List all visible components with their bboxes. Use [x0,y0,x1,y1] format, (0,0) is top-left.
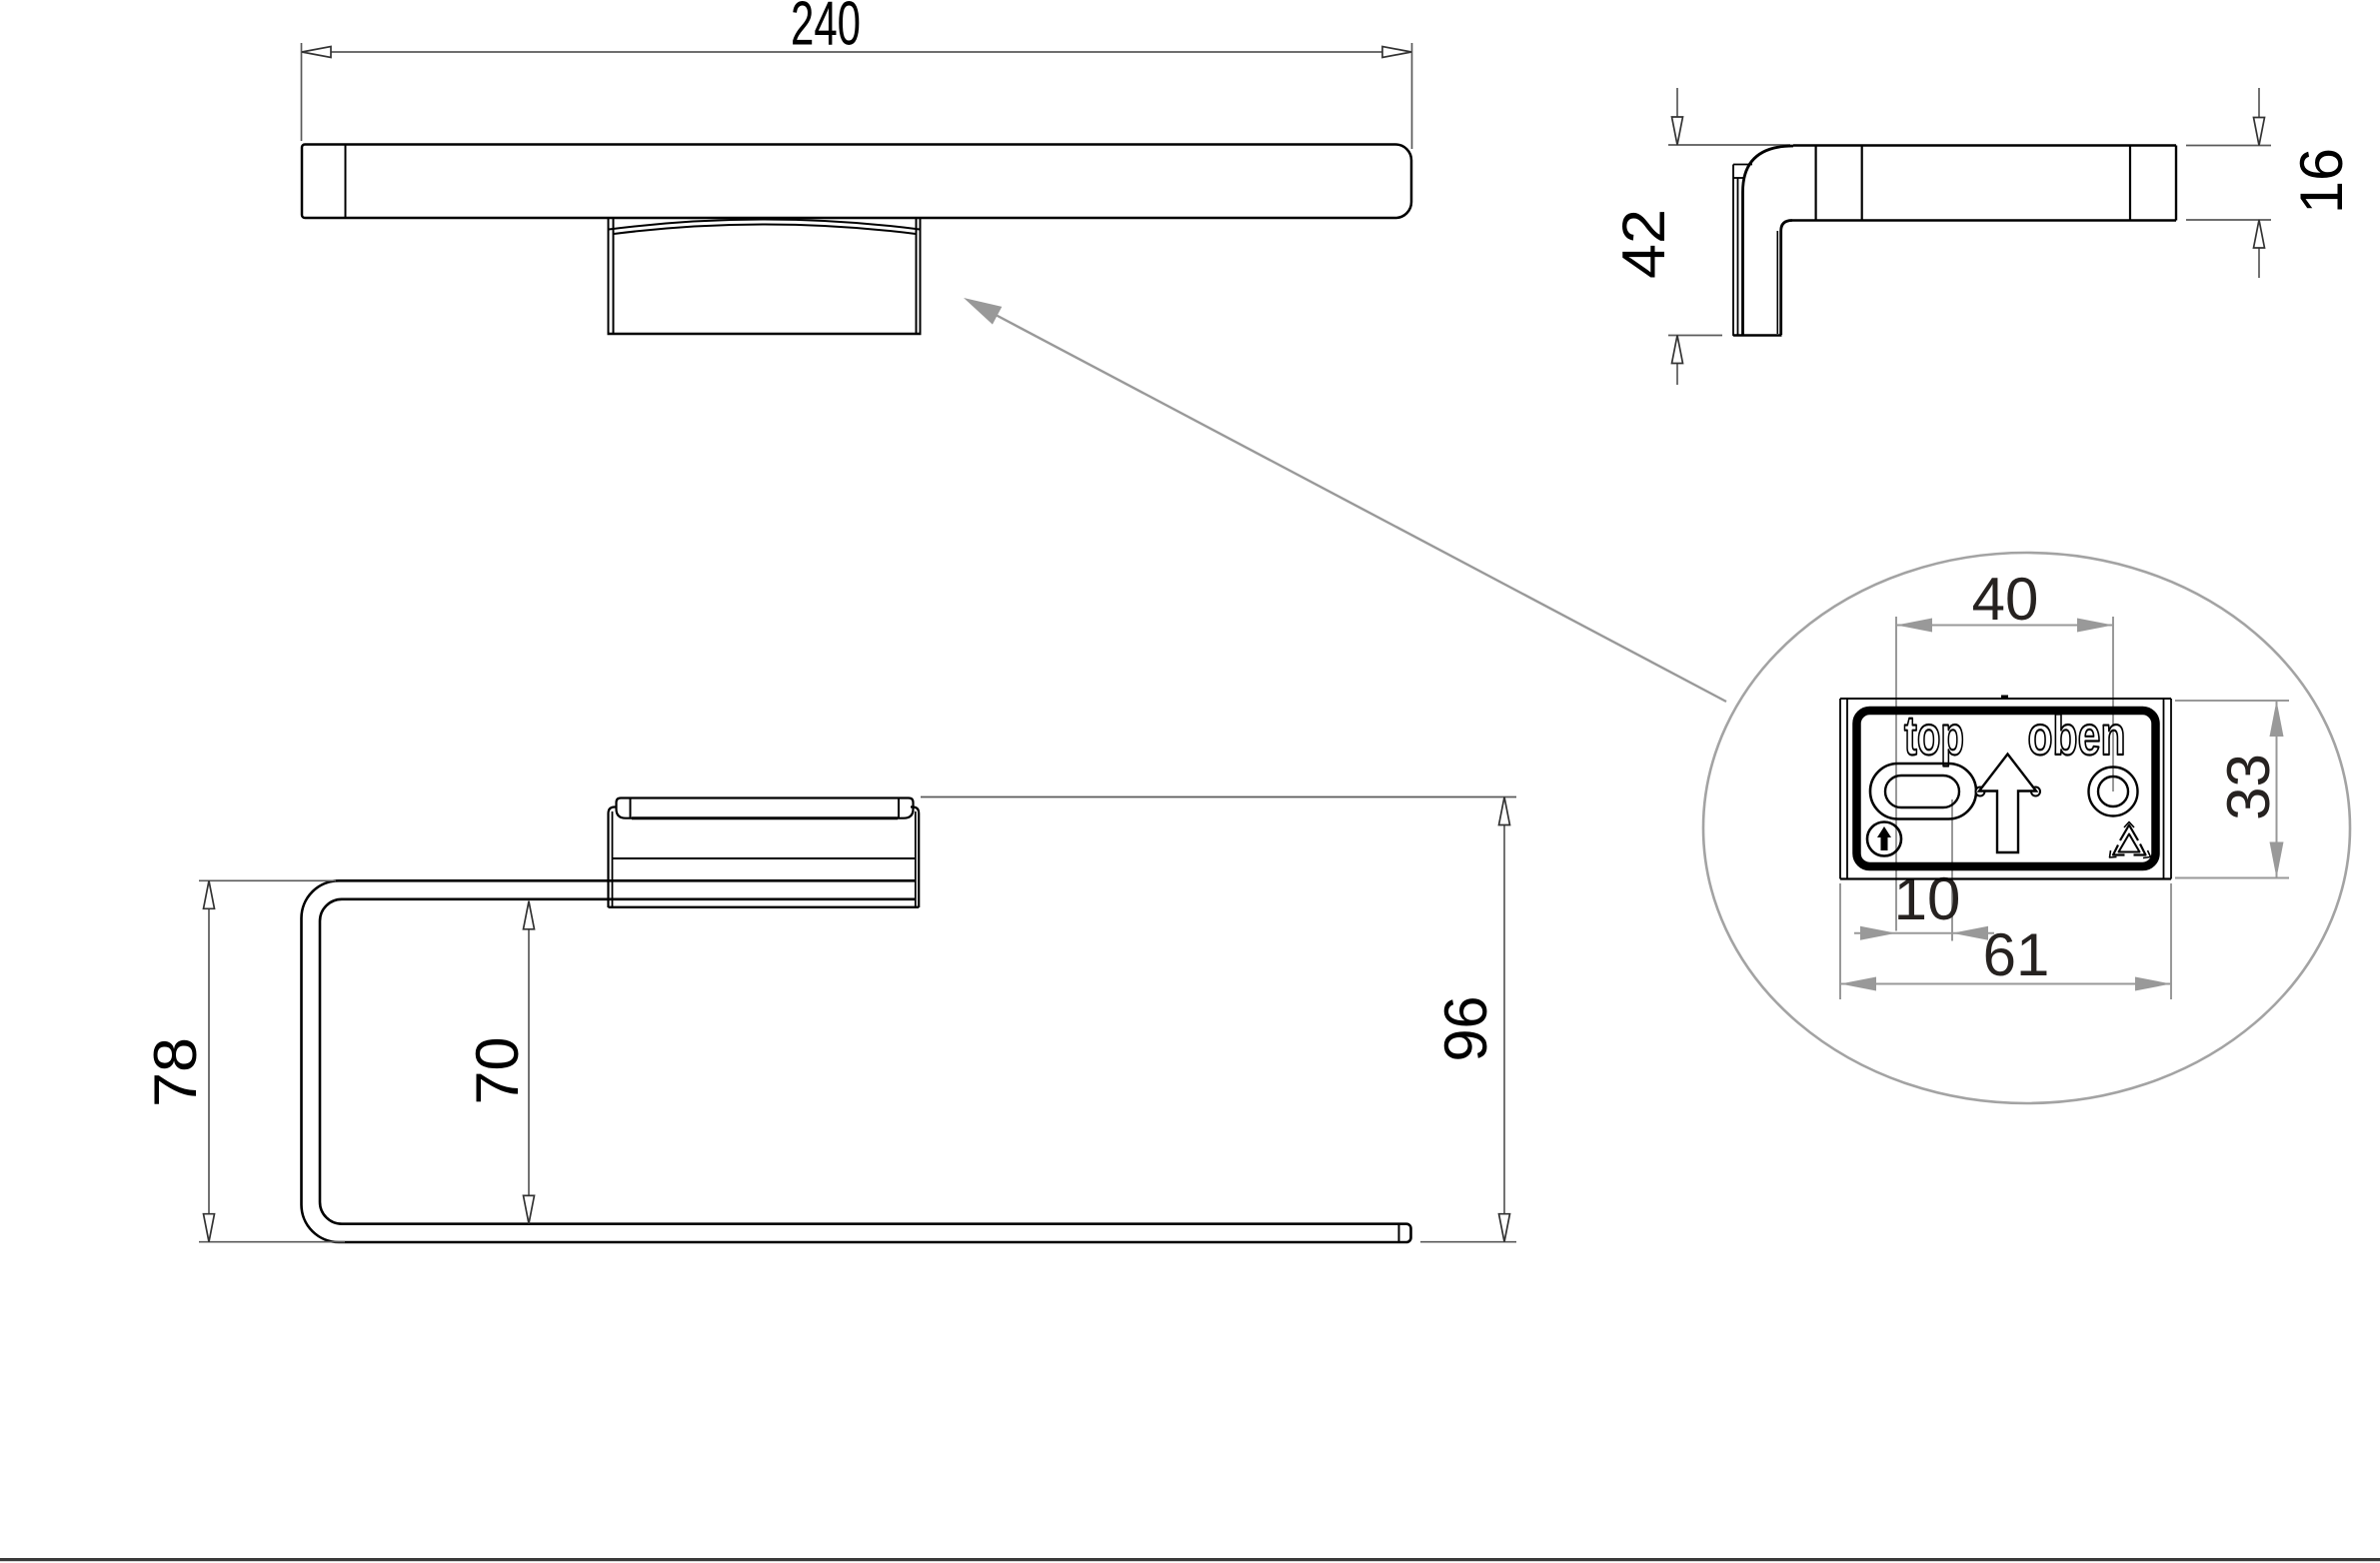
svg-text:40: 40 [1972,566,2039,633]
svg-text:96: 96 [1432,996,1499,1062]
svg-text:61: 61 [1983,921,2050,988]
svg-text:top: top [1904,704,1964,767]
svg-text:240: 240 [791,0,861,59]
svg-text:10: 10 [1894,865,1961,932]
svg-text:16: 16 [2288,148,2355,214]
svg-text:70: 70 [464,1037,531,1105]
svg-text:33: 33 [2215,754,2282,820]
svg-text:78: 78 [142,1037,209,1107]
svg-text:oben: oben [2028,704,2126,767]
svg-text:42: 42 [1610,209,1677,279]
